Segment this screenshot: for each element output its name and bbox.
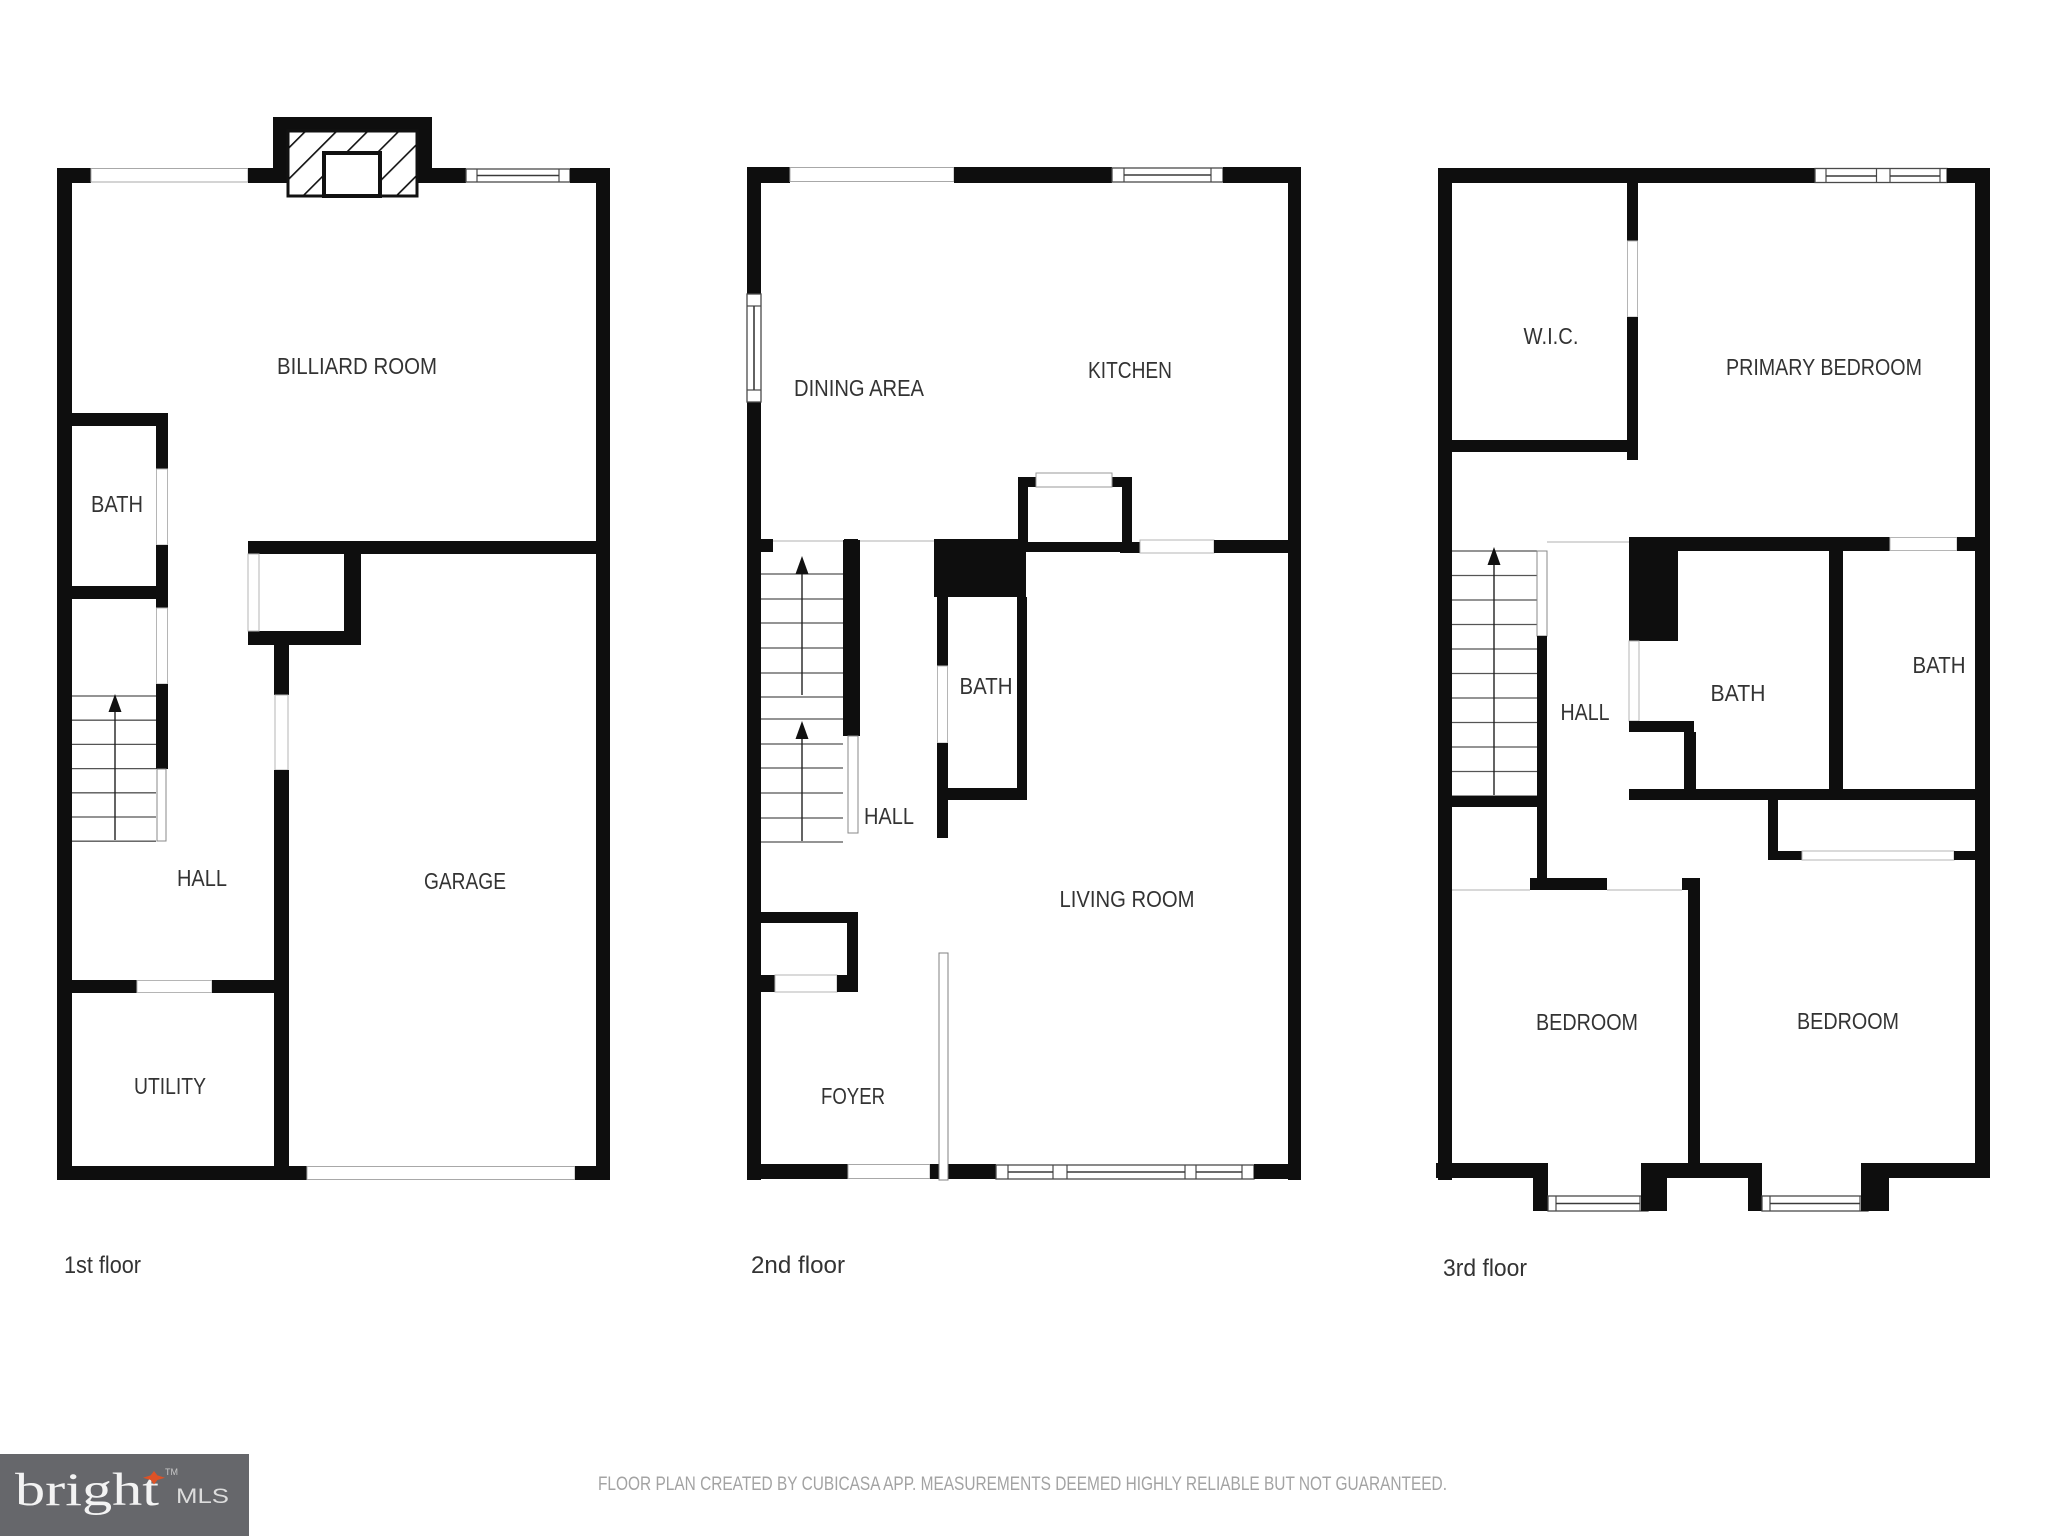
svg-text:PRIMARY BEDROOM: PRIMARY BEDROOM	[1726, 354, 1922, 380]
svg-text:2nd floor: 2nd floor	[751, 1252, 845, 1279]
svg-text:LIVING ROOM: LIVING ROOM	[1060, 886, 1195, 912]
svg-text:HALL: HALL	[177, 865, 227, 891]
svg-text:HALL: HALL	[864, 803, 914, 829]
svg-text:HALL: HALL	[1561, 699, 1610, 725]
svg-text:BEDROOM: BEDROOM	[1797, 1008, 1899, 1034]
svg-text:BILLIARD ROOM: BILLIARD ROOM	[277, 353, 437, 379]
svg-text:MLS: MLS	[176, 1485, 229, 1508]
svg-text:GARAGE: GARAGE	[424, 868, 506, 894]
svg-text:KITCHEN: KITCHEN	[1088, 357, 1172, 383]
svg-text:UTILITY: UTILITY	[134, 1073, 206, 1099]
svg-text:BATH: BATH	[1711, 680, 1766, 706]
svg-text:BEDROOM: BEDROOM	[1536, 1009, 1638, 1035]
svg-text:BATH: BATH	[960, 673, 1013, 699]
svg-text:DINING AREA: DINING AREA	[794, 375, 925, 401]
svg-text:W.I.C.: W.I.C.	[1524, 323, 1579, 349]
svg-text:TM: TM	[165, 1467, 178, 1477]
svg-text:FLOOR PLAN CREATED BY CUBICASA: FLOOR PLAN CREATED BY CUBICASA APP. MEAS…	[598, 1474, 1447, 1495]
svg-text:BATH: BATH	[1913, 652, 1966, 678]
svg-text:1st floor: 1st floor	[64, 1252, 141, 1279]
svg-text:BATH: BATH	[91, 491, 143, 517]
svg-text:3rd floor: 3rd floor	[1443, 1255, 1527, 1282]
svg-text:bright: bright	[15, 1464, 159, 1516]
svg-text:FOYER: FOYER	[821, 1083, 885, 1109]
